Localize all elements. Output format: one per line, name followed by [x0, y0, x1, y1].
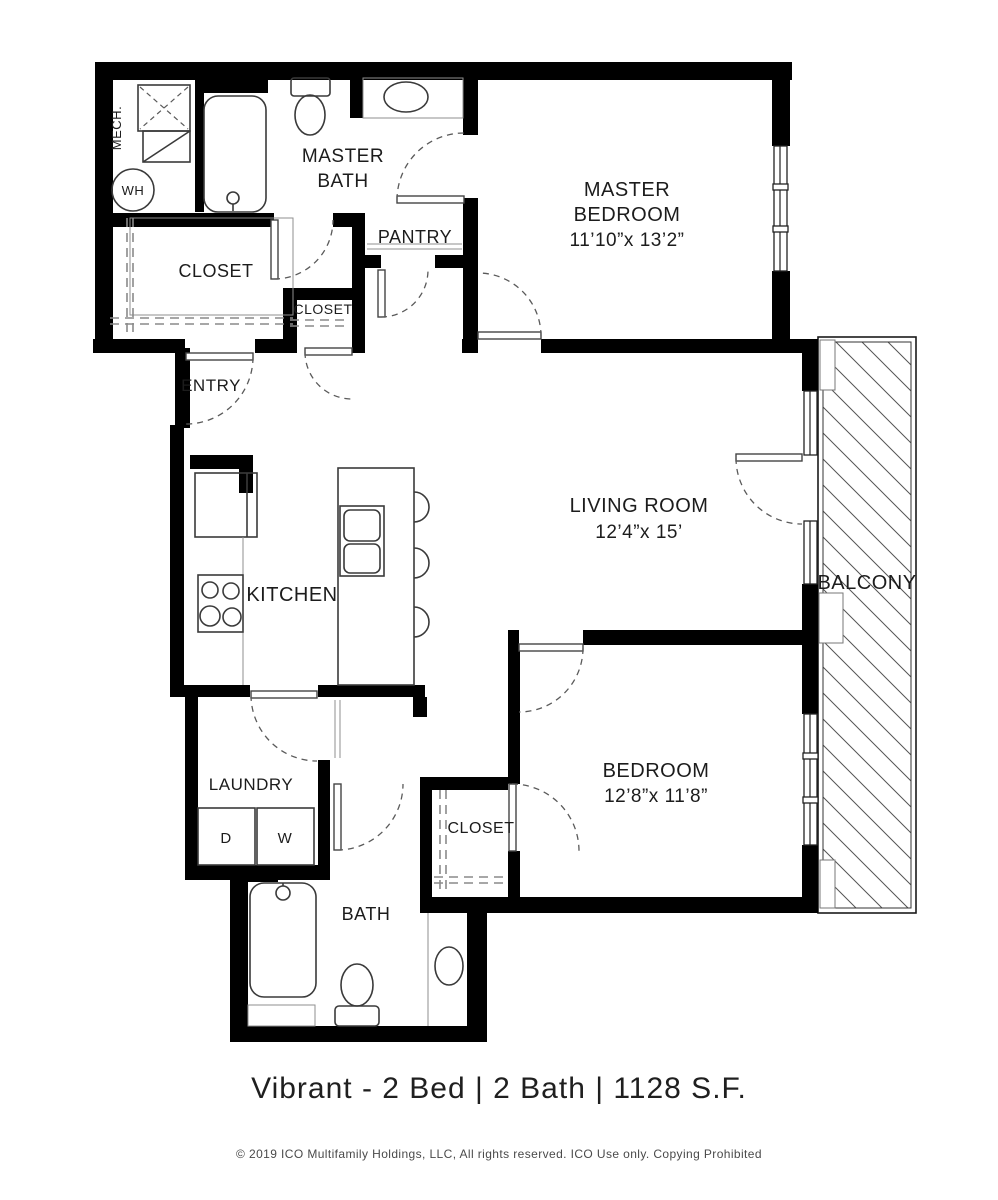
master-closet-label: CLOSET — [178, 261, 253, 281]
living-room-dims: 12’4”x 15’ — [595, 522, 682, 543]
master-sink — [363, 78, 463, 118]
laundry-door — [251, 691, 317, 761]
master-bedroom-label-line1: MASTER — [584, 179, 670, 201]
hall-closet-label: CLOSET — [293, 301, 352, 317]
bathtub — [248, 883, 316, 1026]
balcony-door — [736, 454, 802, 524]
living-room-window — [804, 391, 817, 455]
master-bedroom-label-line2: BEDROOM — [574, 204, 681, 226]
balcony-column — [820, 340, 835, 390]
mech-label: MECH. — [109, 106, 124, 150]
pantry-label: PANTRY — [378, 227, 452, 247]
living-room-window — [804, 521, 817, 584]
washer-label: W — [278, 830, 293, 847]
master-bedroom-door — [478, 273, 541, 339]
pantry-hall-door — [378, 270, 428, 317]
shower — [138, 85, 190, 162]
bath-label: BATH — [342, 904, 391, 924]
walls — [93, 62, 818, 1042]
toilet — [335, 964, 379, 1026]
balcony-column — [820, 860, 835, 908]
bath-door — [334, 700, 403, 850]
balcony-label: BALCONY — [817, 572, 916, 594]
master-bedroom-window — [773, 146, 788, 271]
master-bath-door — [397, 133, 464, 203]
hall-closet-door — [305, 348, 352, 399]
copyright-footer: © 2019 ICO Multifamily Holdings, LLC, Al… — [236, 1147, 762, 1161]
kitchen-label: KITCHEN — [246, 584, 337, 606]
windows — [773, 146, 818, 845]
master-bath-label-line2: BATH — [317, 171, 368, 192]
bedroom-window — [803, 714, 818, 845]
stove — [198, 575, 243, 632]
master-bedroom-dims: 11’10”x 13’2” — [570, 230, 685, 251]
entry-label: ENTRY — [181, 376, 241, 395]
master-bath-label-line1: MASTER — [302, 146, 384, 167]
bedroom-closet-label: CLOSET — [447, 820, 514, 837]
master-closet-door — [271, 220, 333, 279]
master-bathtub — [204, 96, 266, 212]
living-room-label: LIVING ROOM — [570, 495, 709, 517]
refrigerator — [195, 473, 257, 537]
dryer-label: D — [220, 830, 231, 847]
floor-plan-page: MECH. WH MASTER BATH PANTRY CLOSET CLOSE… — [0, 0, 998, 1200]
bedroom-dims: 12’8”x 11’8” — [604, 786, 708, 807]
balcony — [818, 337, 916, 913]
bedroom-closet-rod — [434, 790, 506, 895]
kitchen-island — [338, 468, 429, 685]
bedroom-label: BEDROOM — [603, 760, 710, 782]
balcony-step — [819, 593, 843, 643]
plan-title: Vibrant - 2 Bed | 2 Bath | 1128 S.F. — [251, 1072, 747, 1105]
doors — [186, 133, 802, 851]
laundry-label: LAUNDRY — [209, 775, 293, 794]
water-heater-label: WH — [122, 183, 145, 198]
bedroom-door — [519, 644, 583, 712]
floor-plan: MECH. WH MASTER BATH PANTRY CLOSET CLOSE… — [0, 0, 998, 1200]
bath-sink — [428, 913, 463, 1026]
bedroom-closet-door — [509, 784, 579, 851]
hall-closet-rod — [290, 320, 348, 326]
master-toilet — [291, 78, 330, 135]
